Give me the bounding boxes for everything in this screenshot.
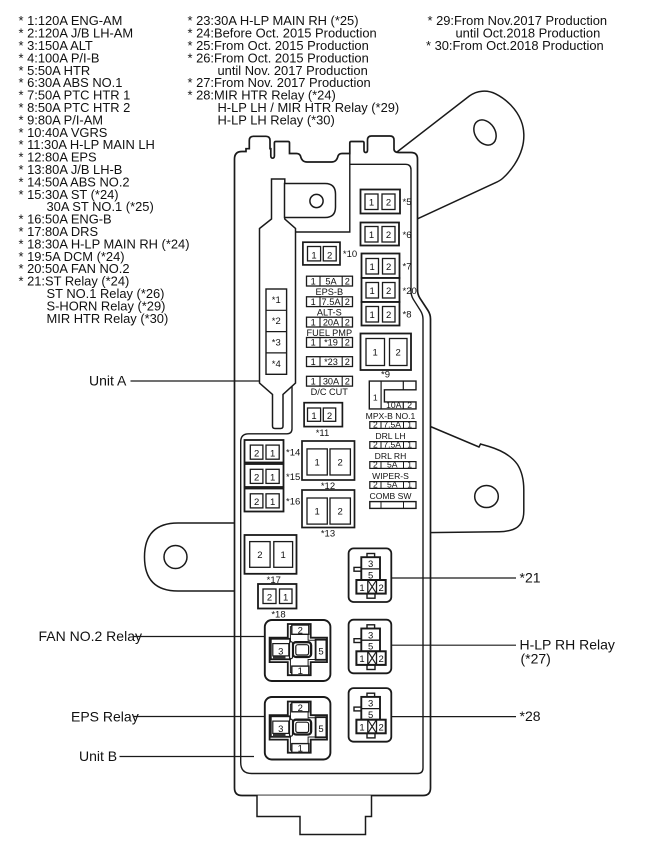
svg-text:1: 1 [370, 262, 375, 273]
svg-text:*13: *13 [321, 529, 335, 540]
svg-text:2: 2 [379, 723, 384, 734]
svg-text:2: 2 [373, 440, 378, 450]
svg-text:*28: *28 [520, 708, 541, 724]
svg-text:2: 2 [379, 654, 384, 665]
svg-text:5A: 5A [387, 480, 398, 490]
svg-text:1: 1 [311, 276, 316, 286]
svg-text:2: 2 [386, 286, 391, 297]
svg-text:*4: *4 [272, 359, 281, 370]
svg-text:1: 1 [311, 357, 316, 367]
svg-text:COMB SW: COMB SW [369, 491, 412, 501]
svg-text:*23: *23 [324, 357, 338, 367]
svg-text:*2: *2 [272, 316, 281, 327]
svg-text:1: 1 [298, 666, 303, 677]
svg-text:*15: *15 [286, 472, 300, 483]
svg-text:1: 1 [407, 440, 412, 450]
svg-text:1: 1 [314, 507, 319, 518]
svg-text:10A: 10A [386, 400, 402, 410]
svg-text:1: 1 [407, 420, 412, 430]
svg-text:2: 2 [298, 625, 303, 636]
svg-text:1: 1 [283, 593, 288, 604]
svg-text:2: 2 [407, 400, 412, 410]
svg-text:*18: *18 [271, 610, 285, 621]
svg-text:1: 1 [311, 411, 316, 422]
svg-text:1: 1 [359, 583, 364, 594]
svg-text:2: 2 [254, 473, 259, 484]
svg-text:3: 3 [368, 630, 373, 641]
svg-text:FAN NO.2 Relay: FAN NO.2 Relay [39, 628, 142, 644]
svg-text:2: 2 [254, 449, 259, 460]
svg-text:2: 2 [338, 507, 343, 518]
svg-text:2: 2 [373, 460, 378, 470]
svg-text:1: 1 [311, 376, 316, 386]
svg-text:2: 2 [345, 357, 350, 367]
svg-text:3: 3 [278, 647, 283, 658]
svg-text:2: 2 [345, 297, 350, 307]
svg-text:*10: *10 [343, 249, 357, 260]
svg-text:3: 3 [278, 724, 283, 735]
svg-text:2: 2 [267, 593, 272, 604]
svg-text:1: 1 [270, 449, 275, 460]
svg-text:1: 1 [369, 198, 374, 209]
svg-text:1: 1 [407, 460, 412, 470]
svg-text:1: 1 [359, 723, 364, 734]
svg-text:7.5A: 7.5A [322, 297, 342, 307]
svg-text:2: 2 [386, 310, 391, 321]
svg-text:*8: *8 [403, 310, 412, 321]
svg-text:*20: *20 [403, 286, 417, 297]
svg-text:* 30:From Oct.2018 Production: * 30:From Oct.2018 Production [426, 38, 604, 53]
svg-text:D/C CUT: D/C CUT [311, 387, 349, 397]
svg-text:Unit B: Unit B [79, 748, 117, 764]
svg-text:2: 2 [345, 338, 350, 348]
svg-text:1: 1 [370, 286, 375, 297]
svg-text:*5: *5 [403, 197, 412, 208]
svg-text:5: 5 [318, 724, 323, 735]
svg-text:2: 2 [386, 262, 391, 273]
svg-text:2: 2 [254, 497, 259, 508]
svg-text:2: 2 [345, 317, 350, 327]
svg-text:*6: *6 [403, 230, 412, 241]
svg-text:3: 3 [368, 699, 373, 710]
svg-text:1: 1 [281, 550, 286, 561]
svg-text:2: 2 [386, 230, 391, 241]
svg-text:2: 2 [396, 348, 401, 359]
svg-text:5A: 5A [387, 460, 398, 470]
svg-text:2: 2 [373, 420, 378, 430]
svg-text:*16: *16 [286, 497, 300, 508]
svg-text:H-LP LH Relay (*30): H-LP LH Relay (*30) [218, 112, 335, 127]
svg-text:5: 5 [318, 647, 323, 658]
svg-text:2: 2 [298, 703, 303, 714]
svg-text:1: 1 [359, 654, 364, 665]
svg-text:*9: *9 [381, 370, 390, 381]
svg-text:1: 1 [270, 473, 275, 484]
svg-text:MIR HTR Relay (*30): MIR HTR Relay (*30) [47, 311, 169, 326]
svg-text:*3: *3 [272, 338, 281, 349]
svg-text:1: 1 [370, 310, 375, 321]
svg-text:2: 2 [327, 411, 332, 422]
svg-text:7.5A: 7.5A [383, 440, 401, 450]
svg-text:2: 2 [345, 276, 350, 286]
svg-text:2: 2 [338, 458, 343, 469]
svg-text:2: 2 [327, 251, 332, 262]
svg-text:1: 1 [373, 348, 378, 359]
svg-text:1: 1 [407, 480, 412, 490]
svg-text:Unit A: Unit A [89, 373, 127, 389]
svg-text:EPS-B: EPS-B [316, 287, 344, 297]
svg-text:2: 2 [373, 480, 378, 490]
svg-text:1: 1 [373, 393, 378, 403]
svg-text:*1: *1 [272, 295, 281, 306]
svg-text:*7: *7 [403, 262, 412, 273]
svg-text:*11: *11 [316, 428, 330, 439]
svg-text:1: 1 [270, 497, 275, 508]
svg-text:EPS Relay: EPS Relay [71, 709, 139, 725]
svg-text:30A: 30A [323, 376, 340, 386]
svg-text:ALT-S: ALT-S [317, 308, 342, 318]
svg-text:1: 1 [311, 251, 316, 262]
svg-text:2: 2 [345, 376, 350, 386]
svg-text:1: 1 [314, 458, 319, 469]
svg-text:*19: *19 [324, 338, 338, 348]
svg-text:1: 1 [369, 230, 374, 241]
svg-text:(*27): (*27) [521, 651, 551, 667]
svg-text:1: 1 [311, 338, 316, 348]
svg-text:2: 2 [386, 198, 391, 209]
svg-text:3: 3 [368, 559, 373, 570]
svg-text:7.5A: 7.5A [383, 420, 401, 430]
svg-text:20A: 20A [323, 317, 340, 327]
svg-text:*21: *21 [520, 570, 541, 586]
svg-text:*14: *14 [286, 448, 300, 459]
svg-text:1: 1 [311, 297, 316, 307]
svg-text:2: 2 [257, 550, 262, 561]
svg-text:FUEL PMP: FUEL PMP [306, 328, 352, 338]
svg-text:2: 2 [379, 583, 384, 594]
svg-text:1: 1 [298, 744, 303, 755]
svg-text:1: 1 [311, 317, 316, 327]
svg-text:5A: 5A [325, 276, 337, 286]
